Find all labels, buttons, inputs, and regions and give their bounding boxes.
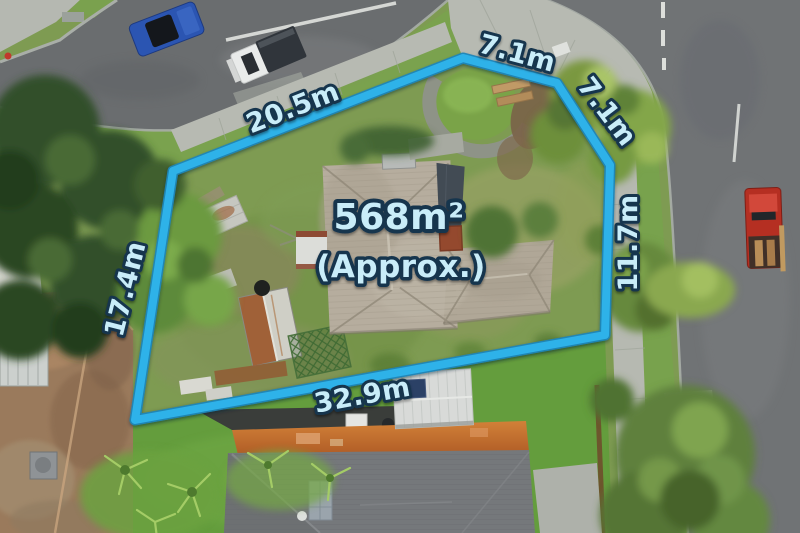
- red-ute: [745, 187, 786, 272]
- aerial-property-photo: 20.5m 7.1m 7.1m 11.7m 32.9m 17.4m 568m² …: [0, 0, 800, 533]
- water-tank: [254, 280, 270, 296]
- mailbox: [5, 53, 12, 60]
- aerial-photo-canvas: 20.5m 7.1m 7.1m 11.7m 32.9m 17.4m 568m² …: [0, 0, 800, 533]
- area-approx-label: (Approx.): [316, 249, 486, 285]
- area-label: 568m²: [334, 197, 465, 238]
- ac-unit: [30, 452, 57, 479]
- road-dashed-line: [663, 2, 664, 70]
- dimension-label-right: 11.7m: [613, 194, 644, 291]
- driveway: [533, 463, 602, 533]
